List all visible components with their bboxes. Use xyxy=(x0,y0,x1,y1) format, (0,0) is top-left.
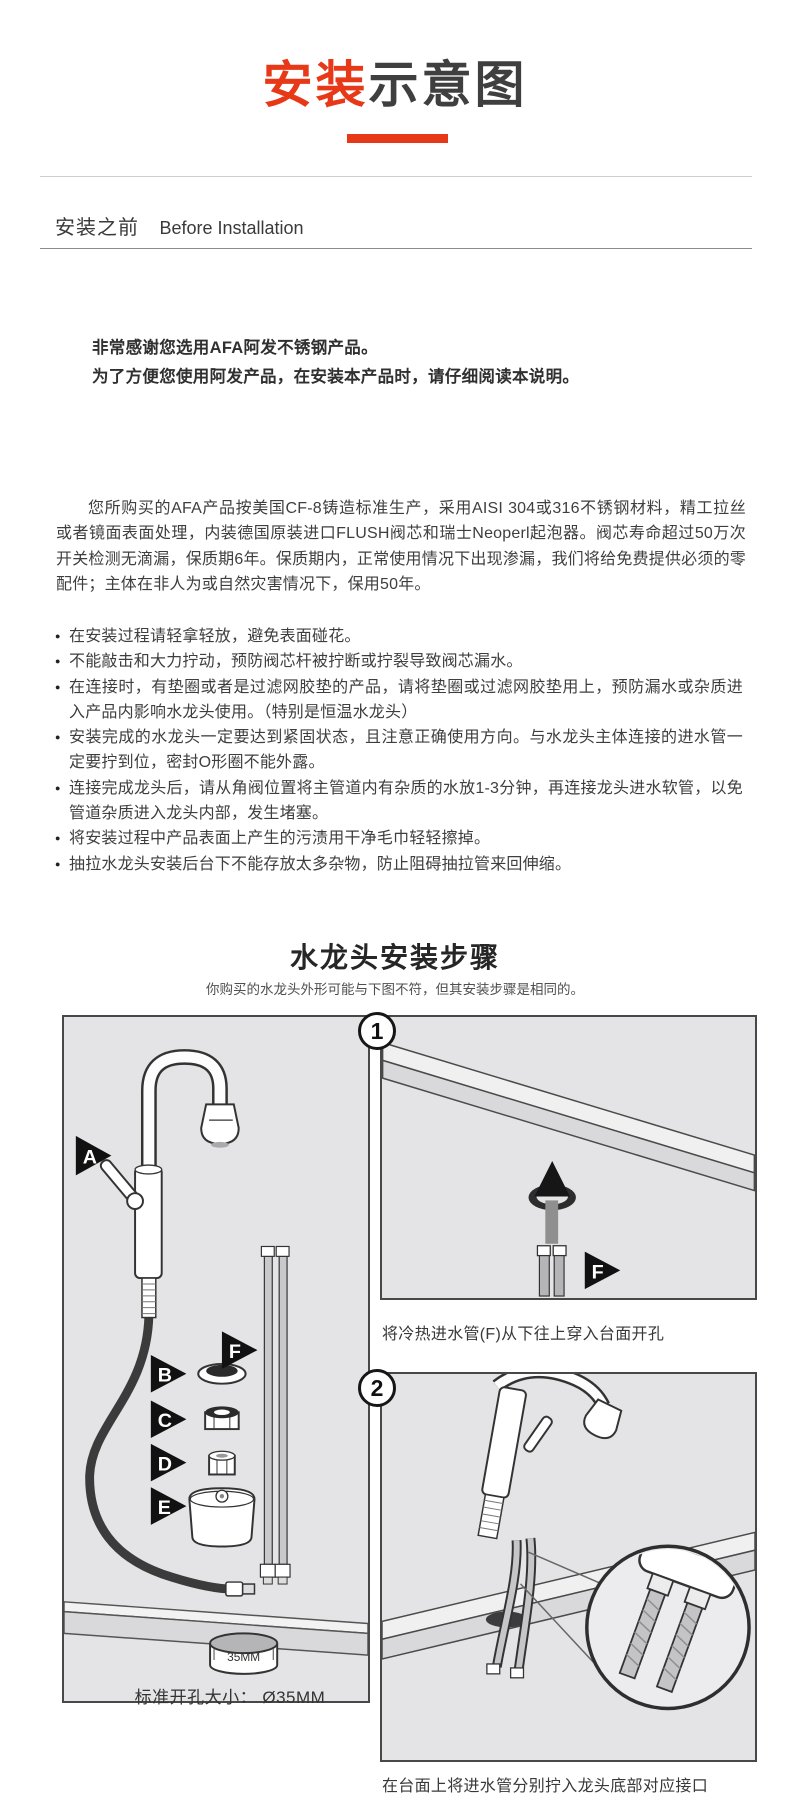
intro-paragraph: 您所购买的AFA产品按美国CF-8铸造标准生产，采用AISI 304或316不锈… xyxy=(56,496,746,597)
note-item: ●在安装过程请轻拿轻放，避免表面碰花。 xyxy=(55,624,743,649)
label-f: F xyxy=(592,1261,604,1283)
step-1-number-badge: 1 xyxy=(358,1012,396,1050)
bullet-icon: ● xyxy=(55,852,69,877)
thanks-block: 非常感谢您选用AFA阿发不锈钢产品。 为了方便您使用阿发产品，在安装本产品时，请… xyxy=(92,334,652,392)
installation-notes-list: ●在安装过程请轻拿轻放，避免表面碰花。 ●不能敲击和大力拧动，预防阀芯杆被拧断或… xyxy=(55,624,743,877)
note-item: ●在连接时，有垫圈或者是过滤网胶垫的产品，请将垫圈或过滤网胶垫用上，预防漏水或杂… xyxy=(55,675,743,726)
thanks-line-1: 非常感谢您选用AFA阿发不锈钢产品。 xyxy=(92,334,652,363)
heading-en: Before Installation xyxy=(159,218,303,238)
bullet-icon: ● xyxy=(55,826,69,851)
bullet-icon: ● xyxy=(55,776,69,801)
step-2-number-badge: 2 xyxy=(358,1369,396,1407)
bullet-icon: ● xyxy=(55,675,69,700)
bullet-icon: ● xyxy=(55,649,69,674)
supply-hose-1 xyxy=(264,1256,272,1564)
installation-guide-page: 安装示意图 安装之前 Before Installation 非常感谢您选用AF… xyxy=(0,0,790,1805)
countertop-edge xyxy=(383,1043,755,1173)
step-2-caption: 在台面上将进水管分别拧入龙头底部对应接口 xyxy=(382,1772,757,1796)
before-installation-heading: 安装之前 Before Installation xyxy=(55,211,304,240)
hose-connector-tip xyxy=(243,1584,255,1594)
bullet-icon: ● xyxy=(55,725,69,750)
page-title: 安装示意图 xyxy=(0,58,790,113)
page-title-rest: 示意图 xyxy=(369,57,528,113)
page-title-block: 安装示意图 xyxy=(0,58,790,113)
step-1-illustration: F xyxy=(382,1017,755,1298)
label-f: F xyxy=(229,1341,241,1363)
supply-hose-2 xyxy=(554,1256,564,1296)
faucet-parts-illustration: A B C D E F 35MM xyxy=(64,1017,368,1701)
faucet-handle xyxy=(523,1415,554,1453)
spray-head xyxy=(580,1398,625,1443)
spray-head xyxy=(201,1104,239,1143)
thanks-line-2: 为了方便您使用阿发产品，在安装本产品时，请仔细阅读本说明。 xyxy=(92,363,652,392)
countertop-face xyxy=(383,1060,755,1190)
step-1-caption: 将冷热进水管(F)从下往上穿入台面开孔 xyxy=(382,1320,757,1344)
step-2-illustration xyxy=(382,1374,755,1760)
note-item: ●连接完成龙头后，请从角阀位置将主管道内有杂质的水放1-3分钟，再连接龙头进水软… xyxy=(55,776,743,827)
title-underline-bar xyxy=(347,134,448,143)
faucet-body xyxy=(474,1387,526,1540)
faucet-body xyxy=(135,1168,162,1279)
steps-section-heading: 水龙头安装步骤 xyxy=(0,936,790,976)
heading-zh: 安装之前 xyxy=(55,217,139,239)
label-c: C xyxy=(158,1410,172,1432)
supply-hose-2 xyxy=(279,1256,287,1564)
page-title-highlight: 安装 xyxy=(263,57,369,113)
steps-section-subheading: 你购买的水龙头外形可能与下图不符，但其安装步骤是相同的。 xyxy=(0,978,790,998)
divider-bottom xyxy=(40,248,752,249)
label-e: E xyxy=(158,1497,171,1519)
label-b: B xyxy=(158,1365,172,1387)
note-item: ●安装完成的水龙头一定要达到紧固状态，且注意正确使用方向。与水龙头主体连接的进水… xyxy=(55,725,743,776)
hose-connector xyxy=(226,1582,243,1596)
up-arrow-shaft xyxy=(545,1200,558,1243)
ring-size-text: 35MM xyxy=(227,1650,260,1664)
note-item: ●抽拉水龙头安装后台下不能存放太多杂物，防止阻碍抽拉管来回伸缩。 xyxy=(55,852,743,877)
divider-top xyxy=(40,176,752,177)
note-item: ●将安装过程中产品表面上产生的污渍用干净毛巾轻轻擦掉。 xyxy=(55,826,743,851)
supply-hose-1 xyxy=(539,1256,549,1296)
faucet-parts-diagram-panel: A B C D E F 35MM 标准开孔大小： Ø35MM xyxy=(62,1015,370,1703)
label-a: A xyxy=(83,1147,97,1169)
hole-size-caption: 标准开孔大小： Ø35MM xyxy=(94,1683,366,1708)
bullet-icon: ● xyxy=(55,624,69,649)
step-2-diagram-panel xyxy=(380,1372,757,1762)
label-d: D xyxy=(158,1454,172,1476)
up-arrow-icon xyxy=(534,1161,569,1196)
note-item: ●不能敲击和大力拧动，预防阀芯杆被拧断或拧裂导致阀芯漏水。 xyxy=(55,649,743,674)
step-1-diagram-panel: F xyxy=(380,1015,757,1300)
